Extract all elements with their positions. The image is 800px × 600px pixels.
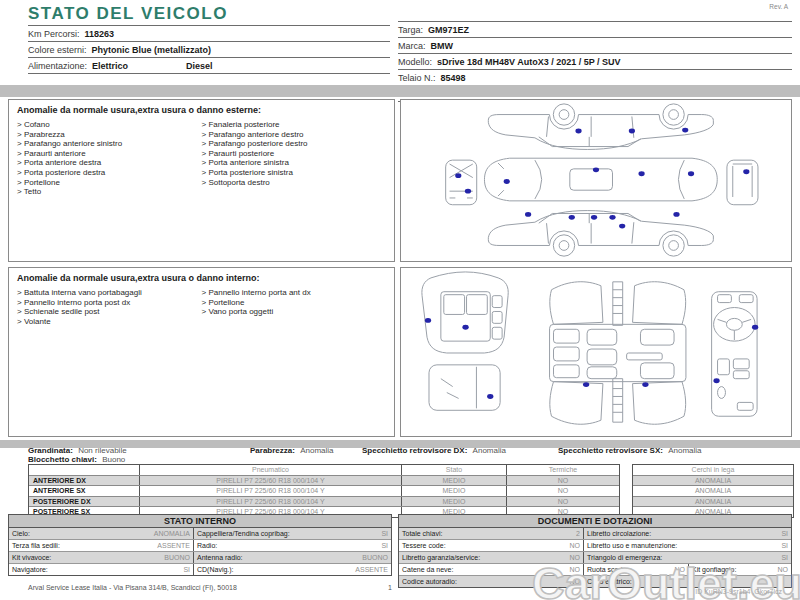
dashboard-icon xyxy=(712,292,757,417)
tailgate-inner-icon xyxy=(429,365,500,410)
tire-termiche: NO xyxy=(506,497,619,507)
field-label: Ruota scorta: xyxy=(587,564,629,575)
trunk-interior-icon xyxy=(422,272,508,353)
field-label: Libretto uso e manutenzione: xyxy=(587,540,677,551)
exterior-anomalies-right-column: > Fanaleria posteriore > Parafango anter… xyxy=(202,120,387,197)
field-value: NO xyxy=(566,564,581,575)
tire-row: ANTERIORE DX PIRELLI P7 225/60 R18 000/1… xyxy=(29,475,619,486)
field-pair: Triangolo di emergenza:SI xyxy=(583,552,791,563)
exterior-anomalies-left-column: > Cofano > Parabrezza > Parafango anteri… xyxy=(17,120,202,197)
car-left-side-icon xyxy=(488,211,713,257)
cabin-interior-icon xyxy=(550,282,686,424)
car-front-view-icon xyxy=(446,160,477,205)
tire-row: ANOMALIA xyxy=(633,475,793,486)
tire-spec: PIRELLI P7 225/60 R18 000/104 Y xyxy=(139,497,401,507)
info-value: Phytonic Blue (metallizzato) xyxy=(92,45,212,55)
anomaly-item: > Paraurti posteriore xyxy=(202,149,387,159)
info-label: Targa: xyxy=(398,25,423,35)
field-label: Navigatore: xyxy=(12,564,48,575)
vehicle-info-left: Km Percorsi: 118263 Colore esterni: Phyt… xyxy=(28,25,390,74)
stato-interno-table: STATO INTERNO Cielo:ANOMALIA Cappelliera… xyxy=(8,514,392,576)
tire-header-stato: Stato xyxy=(401,465,506,475)
field-pair: Terza fila sedili:ASSENTE xyxy=(9,540,193,551)
field-pair: Libretto garanzia/service:NO xyxy=(399,552,583,563)
field-value: SI xyxy=(377,528,388,539)
field-value: SI xyxy=(777,528,788,539)
info-label: Colore esterni: xyxy=(28,45,87,55)
table-row: Terza fila sedili:ASSENTE Radio:SI xyxy=(9,539,391,551)
tire-row: ANOMALIA xyxy=(633,485,793,496)
vehicle-condition-report-page: STATO DEL VEICOLO Rev. A Km Percorsi: 11… xyxy=(0,0,800,600)
exterior-damage-diagram xyxy=(401,100,791,261)
interior-damage-dots xyxy=(425,318,758,399)
field-label: Triangolo di emergenza: xyxy=(587,552,662,563)
anomaly-item: > Portellone xyxy=(202,298,387,308)
anomaly-item: > Battuta interna vano portabagagli xyxy=(17,288,202,298)
interior-anomalies-title: Anomalie da normale usura,extra usura o … xyxy=(17,273,386,283)
field-pair: Codice autoradio:NO xyxy=(399,576,583,587)
tire-table-cerchi: Cerchi in lega ANOMALIA ANOMALIA ANOMALI… xyxy=(632,464,794,518)
info-label: Km Percorsi: xyxy=(28,29,80,39)
tire-header-row: Cerchi in lega xyxy=(633,465,793,475)
summary-label: Specchietto retrovisore DX: xyxy=(362,446,467,455)
summary-specchietto-dx: Specchietto retrovisore DX: Anomalia xyxy=(362,447,558,456)
field-pair: Cavo elettrico: xyxy=(583,576,791,587)
field-label: Codice autoradio: xyxy=(402,576,457,587)
summary-parabrezza: Parabrezza: Anomalia xyxy=(250,447,362,456)
interior-anomalies-columns: > Battuta interna vano portabagagli > Pa… xyxy=(17,288,386,326)
field-value: SI xyxy=(377,540,388,551)
field-value: ASSENTE xyxy=(351,564,388,575)
field-label: Kit vivavoce: xyxy=(12,552,51,563)
field-value: BUONO xyxy=(358,552,388,563)
info-label: Telaio N.: xyxy=(398,73,436,83)
summary-blocchetto: Blocchetto chiavi: Buono xyxy=(28,456,125,465)
footer-company: Arval Service Lease Italia - Via Pisana … xyxy=(28,584,237,591)
documenti-title: DOCUMENTI E DOTAZIONI xyxy=(399,515,791,528)
field-label: Libretto garanzia/service: xyxy=(402,552,480,563)
table-row: Libretto garanzia/service:NO Triangolo d… xyxy=(399,551,791,563)
info-row-marca: Marca: BMW xyxy=(398,38,792,54)
summary-value: Anomalia xyxy=(473,446,506,455)
field-label: Terza fila sedili: xyxy=(12,540,60,551)
anomaly-item: > Porta anteriore sinistra xyxy=(202,158,387,168)
summary-label: Specchietto retrovisore SX: xyxy=(558,446,663,455)
tire-stato: MEDIO xyxy=(401,476,506,486)
info-label: Alimentazione: xyxy=(28,61,87,71)
field-label: Cielo: xyxy=(12,528,30,539)
field-value: BUONO xyxy=(160,552,190,563)
tire-header-cerchi: Cerchi in lega xyxy=(633,465,793,475)
summary-value: Anomalia xyxy=(668,446,701,455)
section-divider-bar xyxy=(0,85,800,97)
tire-spec: PIRELLI P7 225/60 R18 000/104 Y xyxy=(139,486,401,496)
info-value: BMW xyxy=(431,41,454,51)
tire-table: Pneumatico Stato Termiche ANTERIORE DX P… xyxy=(28,464,794,518)
field-label: Cappelliera/Tendina copribag: xyxy=(197,528,290,539)
summary-label: Parabrezza: xyxy=(250,446,295,455)
field-value: NO xyxy=(566,576,581,587)
field-pair: Totale chiavi:2 xyxy=(399,528,583,539)
car-right-side-icon xyxy=(488,104,713,150)
tire-position: ANTERIORE SX xyxy=(29,486,139,496)
field-pair: Navigatore:SI xyxy=(9,564,193,575)
tire-position: POSTERIORE DX xyxy=(29,497,139,507)
info-value: GM971EZ xyxy=(428,25,469,35)
field-pair: Tessere code:NO xyxy=(399,540,583,551)
anomaly-item: > Pannello interno porta post dx xyxy=(17,298,202,308)
field-label: CD(Navig.): xyxy=(197,564,234,575)
field-label: Totale chiavi: xyxy=(402,528,442,539)
table-row: Tessere code:NO Libretto uso e manutenzi… xyxy=(399,539,791,551)
anomaly-item: > Porta posteriore destra xyxy=(17,168,202,178)
anomaly-item: > Vano porta oggetti xyxy=(202,307,387,317)
info-label: Marca: xyxy=(398,41,426,51)
field-pair: Antenna radio:BUONO xyxy=(193,552,391,563)
tire-table-main: Pneumatico Stato Termiche ANTERIORE DX P… xyxy=(28,464,620,518)
tire-row: POSTERIORE DX PIRELLI P7 225/60 R18 000/… xyxy=(29,496,619,507)
info-row-modello: Modello: sDrive 18d MH48V AutoX3 / 2021 … xyxy=(398,54,792,70)
field-label: Radio: xyxy=(197,540,217,551)
document-id: ID KuRN3-9sr1b4 ,Gkor7lcz xyxy=(695,588,782,595)
documenti-dotazioni-table: DOCUMENTI E DOTAZIONI Totale chiavi:2 Li… xyxy=(398,514,792,588)
anomaly-item: > Sottoporta destro xyxy=(202,178,387,188)
field-pair: Kit gonfiaggio:NO xyxy=(688,564,791,575)
interior-anomalies-right-column: > Pannello interno porta ant dx > Portel… xyxy=(202,288,387,326)
field-label: Tessere code: xyxy=(402,540,446,551)
field-pair: Radio:SI xyxy=(193,540,391,551)
field-value: SI xyxy=(179,564,190,575)
info-value: 118263 xyxy=(85,29,115,39)
info-row-targa: Targa: GM971EZ xyxy=(398,22,792,38)
summary-line-1: Grandinata: Non rilevabile Parabrezza: A… xyxy=(28,447,794,456)
interior-anomalies-panel: Anomalie da normale usura,extra usura o … xyxy=(8,267,395,437)
table-row: Codice autoradio:NO Cavo elettrico: xyxy=(399,575,791,587)
field-pair: CD(Navig.):ASSENTE xyxy=(193,564,391,575)
field-label: Libretto circolazione: xyxy=(587,528,651,539)
tire-termiche: NO xyxy=(506,476,619,486)
info-row-colore: Colore esterni: Phytonic Blue (metallizz… xyxy=(28,42,390,58)
field-pair: Ruota scorta:NO xyxy=(583,564,688,575)
exterior-anomalies-title: Anomalie da normale usura,extra usura o … xyxy=(17,105,386,115)
field-value: NO xyxy=(566,552,581,563)
field-label: Kit gonfiaggio: xyxy=(692,564,736,575)
interior-anomalies-left-column: > Battuta interna vano portabagagli > Pa… xyxy=(17,288,202,326)
tire-cerchi: ANOMALIA xyxy=(633,476,793,486)
tire-stato: MEDIO xyxy=(401,497,506,507)
tire-spec: PIRELLI P7 225/60 R18 000/104 Y xyxy=(139,476,401,486)
exterior-anomalies-columns: > Cofano > Parabrezza > Parafango anteri… xyxy=(17,120,386,197)
field-label: Catene da neve: xyxy=(402,564,453,575)
anomaly-item: > Paraurti anteriore xyxy=(17,149,202,159)
field-pair: Libretto circolazione:SI xyxy=(583,528,791,539)
tire-termiche: NO xyxy=(506,486,619,496)
summary-value: Buono xyxy=(102,455,125,464)
anomaly-item: > Porta anteriore destra xyxy=(17,158,202,168)
interior-damage-diagram-panel xyxy=(400,267,792,437)
car-top-view-icon xyxy=(484,158,717,201)
condition-summary: Grandinata: Non rilevabile Parabrezza: A… xyxy=(28,447,794,464)
tire-header-row: Pneumatico Stato Termiche xyxy=(29,465,619,475)
car-rear-view-icon xyxy=(727,160,758,205)
table-row: Cielo:ANOMALIA Cappelliera/Tendina copri… xyxy=(9,528,391,539)
stato-interno-title: STATO INTERNO xyxy=(9,515,391,528)
info-value: sDrive 18d MH48V AutoX3 / 2021 / 5P / SU… xyxy=(437,57,621,67)
field-pair: Kit vivavoce:BUONO xyxy=(9,552,193,563)
info-row-telaio: Telaio N.: 85498 xyxy=(398,70,792,86)
exterior-damage-diagram-panel xyxy=(400,99,792,262)
tire-header-termiche: Termiche xyxy=(506,465,619,475)
page-title: STATO DEL VEICOLO xyxy=(28,4,228,24)
field-pair: Cappelliera/Tendina copribag:SI xyxy=(193,528,391,539)
table-row: Navigatore:SI CD(Navig.):ASSENTE xyxy=(9,563,391,575)
field-value: SI xyxy=(777,540,788,551)
interior-damage-diagram xyxy=(401,268,791,436)
field-value: 2 xyxy=(572,528,580,539)
anomaly-item: > Porta posteriore sinistra xyxy=(202,168,387,178)
anomaly-item: > Parafango anteriore destro xyxy=(202,130,387,140)
field-value: ANOMALIA xyxy=(150,528,190,539)
tire-cerchi: ANOMALIA xyxy=(633,497,793,507)
tire-stato: MEDIO xyxy=(401,486,506,496)
field-value xyxy=(784,576,788,587)
revision-label: Rev. A xyxy=(769,3,788,10)
field-value: NO xyxy=(774,564,789,575)
field-value: NO xyxy=(671,564,686,575)
field-pair: Libretto uso e manutenzione:SI xyxy=(583,540,791,551)
anomaly-item: > Parafango anteriore sinistro xyxy=(17,139,202,149)
info-label: Modello: xyxy=(398,57,432,67)
tire-cerchi: ANOMALIA xyxy=(633,486,793,496)
summary-specchietto-sx: Specchietto retrovisore SX: Anomalia xyxy=(558,447,702,456)
anomaly-item: > Portellone xyxy=(17,178,202,188)
anomaly-item: > Tetto xyxy=(17,187,202,197)
info-value: Elettrico xyxy=(92,61,128,71)
table-row: Totale chiavi:2 Libretto circolazione:SI xyxy=(399,528,791,539)
info-value: 85498 xyxy=(441,73,466,83)
field-value: NO xyxy=(566,540,581,551)
field-value: ASSENTE xyxy=(153,540,190,551)
tire-header-pneumatico: Pneumatico xyxy=(139,465,401,475)
anomaly-item: > Schienale sedile post xyxy=(17,307,202,317)
summary-value: Anomalia xyxy=(300,446,333,455)
summary-label: Blocchetto chiavi: xyxy=(28,455,97,464)
anomaly-item: > Volante xyxy=(17,317,202,327)
anomaly-item: > Pannello interno porta ant dx xyxy=(202,288,387,298)
field-pair: Catene da neve:NO xyxy=(399,564,583,575)
anomaly-item: > Parafango posteriore destro xyxy=(202,139,387,149)
field-label: Antenna radio: xyxy=(197,552,243,563)
field-label: Cavo elettrico: xyxy=(587,576,632,587)
anomaly-item: > Parabrezza xyxy=(17,130,202,140)
tire-row: ANOMALIA xyxy=(633,496,793,507)
field-pair: Cielo:ANOMALIA xyxy=(9,528,193,539)
summary-line-2: Blocchetto chiavi: Buono xyxy=(28,456,794,465)
tire-header-empty xyxy=(29,465,139,475)
tire-row: ANTERIORE SX PIRELLI P7 225/60 R18 000/1… xyxy=(29,485,619,496)
page-number: 1 xyxy=(388,584,392,591)
table-row: Kit vivavoce:BUONO Antenna radio:BUONO xyxy=(9,551,391,563)
exterior-anomalies-panel: Anomalie da normale usura,extra usura o … xyxy=(8,99,395,262)
tire-position: ANTERIORE DX xyxy=(29,476,139,486)
anomaly-item: > Cofano xyxy=(17,120,202,130)
info-row-alimentazione: Alimentazione: Elettrico Diesel xyxy=(28,58,390,74)
anomaly-item: > Fanaleria posteriore xyxy=(202,120,387,130)
info-value-secondary: Diesel xyxy=(186,61,213,71)
field-value: SI xyxy=(777,552,788,563)
info-row-km: Km Percorsi: 118263 xyxy=(28,26,390,42)
table-row: Catene da neve:NO Ruota scorta:NO Kit go… xyxy=(399,563,791,575)
